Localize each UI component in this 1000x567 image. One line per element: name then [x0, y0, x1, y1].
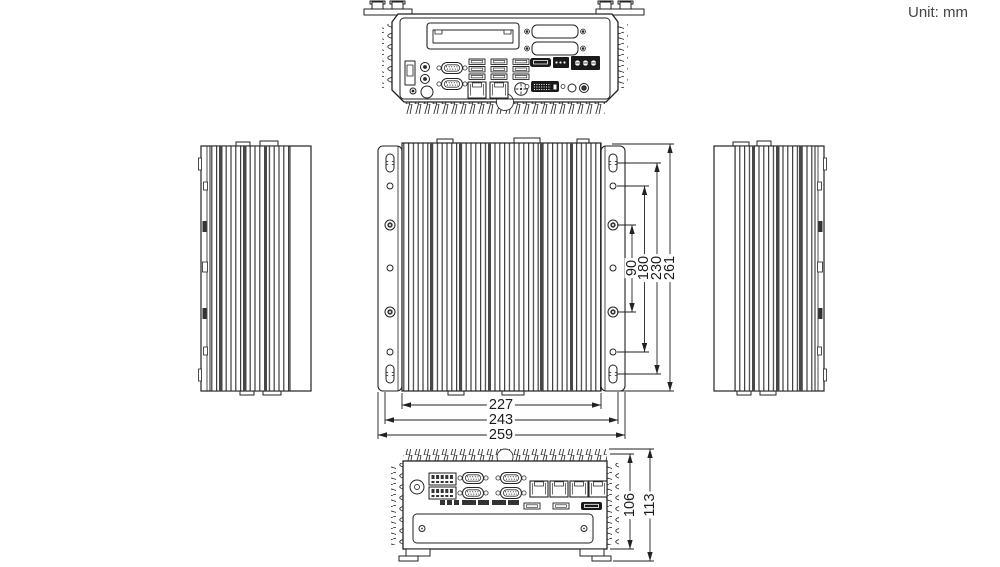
- hdmi-port: [530, 58, 551, 67]
- top-tab: [757, 141, 771, 146]
- top-tab: [733, 142, 749, 146]
- fin-band: [570, 143, 573, 391]
- dim-width-243: 243: [487, 413, 515, 428]
- fin-band: [488, 143, 491, 391]
- bottom-tab: [240, 391, 254, 395]
- expansion-slot: [427, 23, 519, 49]
- dim-front-106: 106: [623, 491, 638, 519]
- bottom-tab: [263, 391, 281, 395]
- fin-band: [430, 143, 433, 391]
- lan-port: [570, 481, 588, 497]
- fin-band: [264, 146, 267, 391]
- left-side-view: [199, 141, 312, 395]
- unit-label: Unit: mm: [908, 4, 968, 21]
- dim-width-259: 259: [487, 428, 515, 443]
- right-side-view: [714, 141, 827, 395]
- mechanical-drawing: [0, 0, 1000, 567]
- front-panel-view: [391, 449, 619, 561]
- dc-power-connector: [553, 57, 569, 68]
- top-view: [378, 138, 625, 395]
- power-switch: [405, 61, 415, 85]
- antenna-connector: [410, 480, 424, 494]
- fin-band: [752, 146, 755, 391]
- fin-area: [735, 146, 815, 391]
- dim-width-227: 227: [487, 398, 515, 413]
- fin-edge-right: [607, 463, 619, 545]
- usb-ports: [469, 59, 529, 79]
- mounting-feet: [399, 549, 611, 561]
- dimension-drawing-page: Unit: mm 227 243 259 90 180 230 261 106 …: [0, 0, 1000, 567]
- top-tab: [236, 142, 250, 146]
- lan-port: [589, 481, 607, 497]
- rear-panel-view: [364, 1, 644, 114]
- lan-port: [530, 481, 548, 497]
- expansion-cover-plate: [413, 514, 593, 543]
- lan-port: [550, 481, 568, 497]
- lan-port: [468, 82, 486, 98]
- lan-port: [490, 82, 508, 98]
- top-tab: [260, 141, 278, 146]
- fin-band: [243, 146, 247, 391]
- fin-band: [776, 146, 780, 391]
- dim-height-261: 261: [663, 254, 678, 282]
- mounting-bracket-left: [364, 1, 412, 15]
- mounting-bracket-right: [596, 1, 644, 15]
- power-terminal-block: [571, 56, 600, 70]
- fin-band: [459, 143, 462, 391]
- dim-front-113: 113: [643, 491, 658, 518]
- bottom-tab: [737, 391, 751, 395]
- hdmi-port: [581, 502, 602, 510]
- fin-band: [540, 143, 543, 391]
- bottom-tab: [760, 391, 776, 395]
- fin-edge-left: [391, 463, 403, 545]
- fin-band: [219, 146, 223, 391]
- fin-band: [799, 146, 803, 391]
- ps2-port: [515, 83, 528, 96]
